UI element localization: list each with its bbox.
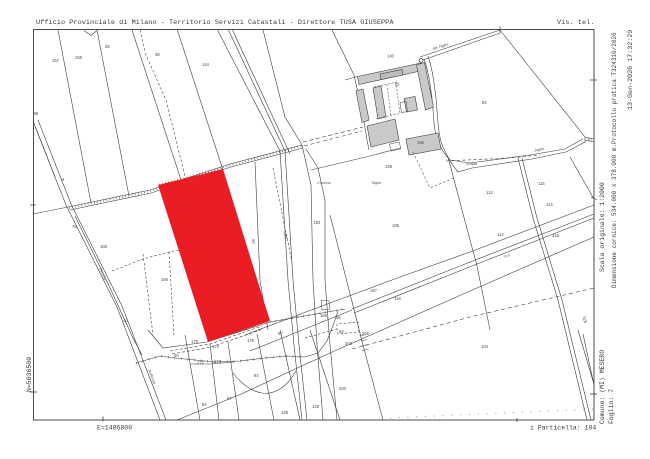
svg-text:173: 173 [212,344,220,349]
svg-text:166: 166 [161,277,169,282]
svg-text:112: 112 [497,232,504,237]
svg-text:E=1486800: E=1486800 [97,425,132,432]
svg-text:32a: 32a [552,233,560,238]
svg-text:Comune: (MI) MESERO: Comune: (MI) MESERO [599,350,606,424]
svg-text:140: 140 [387,54,395,59]
svg-text:148: 148 [312,404,320,409]
svg-text:Strada: Strada [466,162,477,166]
svg-text:187: 187 [370,288,378,293]
svg-text:97: 97 [227,396,232,401]
svg-text:144: 144 [202,62,210,67]
svg-text:84: 84 [202,402,207,407]
svg-text:156: 156 [417,140,425,145]
svg-text:94: 94 [339,329,344,334]
svg-text:172: 172 [197,360,205,365]
svg-text:206: 206 [362,331,370,336]
svg-text:92: 92 [482,100,487,105]
svg-text:114: 114 [546,202,553,207]
svg-text:98: 98 [34,111,39,116]
svg-text:Vis. tel.: Vis. tel. [557,19,594,27]
svg-text:184: 184 [314,220,322,225]
svg-text:96: 96 [336,315,341,320]
svg-text:138: 138 [281,410,289,415]
svg-text:N=5036500: N=5036500 [26,357,33,392]
svg-text:138: 138 [385,164,393,169]
svg-text:174: 174 [214,359,222,364]
svg-text:200: 200 [339,386,347,391]
svg-text:Cascina: Cascina [317,181,331,185]
svg-text:158: 158 [75,55,83,60]
svg-text:115: 115 [538,181,545,186]
svg-text:118: 118 [394,296,401,301]
svg-text:Scala originale: 1:2000: Scala originale: 1:2000 [599,182,606,272]
svg-text:203: 203 [345,341,353,346]
svg-text:93: 93 [254,373,259,378]
svg-text:35: 35 [105,44,110,49]
svg-text:176: 176 [247,338,255,343]
svg-text:i Particella: 184: i Particella: 184 [530,425,596,432]
svg-text:57: 57 [278,331,283,336]
svg-text:168: 168 [100,244,108,249]
svg-text:40: 40 [174,353,179,358]
svg-text:36: 36 [155,52,160,57]
svg-text:Ufficio Provinciale di Milano: Ufficio Provinciale di Milano - Territor… [36,19,394,27]
svg-text:175: 175 [191,339,199,344]
svg-text:165: 165 [320,313,328,318]
svg-text:Dimensione cornice: 534.000 x: Dimensione cornice: 534.000 x 378.000 m.… [611,32,618,288]
svg-text:13-Gen-2026 17:32:29: 13-Gen-2026 17:32:29 [627,30,635,110]
svg-text:Taglia: Taglia [371,181,381,185]
svg-text:Foglio: 7: Foglio: 7 [608,389,615,424]
svg-text:40: 40 [123,318,128,323]
svg-text:113: 113 [486,190,493,195]
svg-text:104: 104 [481,344,489,349]
svg-text:20: 20 [587,137,592,142]
svg-text:157: 157 [52,58,60,63]
svg-text:76: 76 [72,224,77,229]
svg-text:185: 185 [392,223,400,228]
